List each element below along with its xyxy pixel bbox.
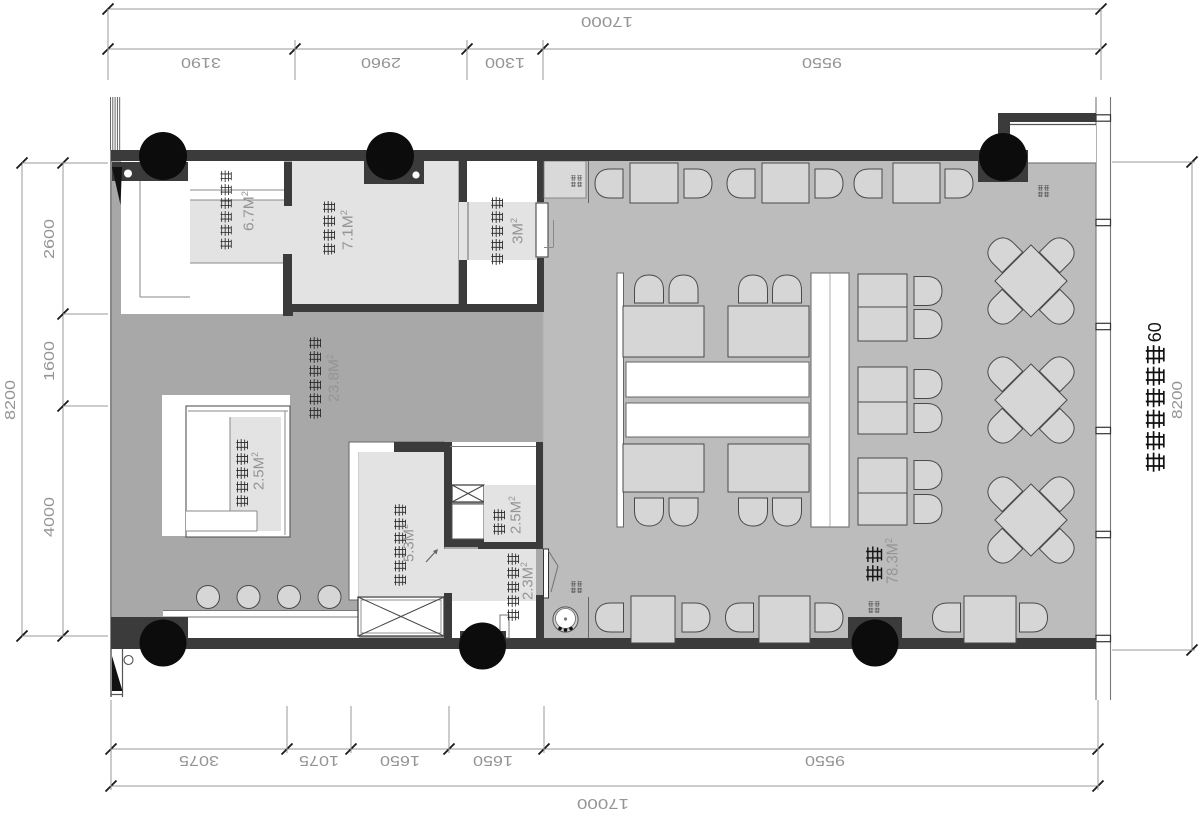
svg-text:78.3M2: 78.3M2 bbox=[884, 538, 902, 584]
svg-text:17000: 17000 bbox=[577, 795, 629, 811]
svg-text:60: 60 bbox=[1145, 322, 1165, 342]
svg-text:3190: 3190 bbox=[181, 54, 221, 70]
svg-text:17000: 17000 bbox=[581, 13, 633, 29]
svg-text:1650: 1650 bbox=[380, 752, 420, 768]
svg-text:2.3M2: 2.3M2 bbox=[519, 562, 537, 600]
svg-text:5.3M2: 5.3M2 bbox=[400, 524, 418, 562]
svg-text:8200: 8200 bbox=[1170, 381, 1186, 419]
svg-text:23.8M2: 23.8M2 bbox=[325, 354, 343, 402]
svg-text:3075: 3075 bbox=[179, 752, 219, 768]
svg-text:2.5M2: 2.5M2 bbox=[250, 452, 268, 490]
svg-text:7.1M2: 7.1M2 bbox=[339, 210, 357, 250]
svg-text:1600: 1600 bbox=[42, 341, 58, 381]
svg-text:9550: 9550 bbox=[805, 752, 845, 768]
svg-text:1650: 1650 bbox=[473, 752, 513, 768]
svg-text:6.7M2: 6.7M2 bbox=[240, 191, 258, 231]
svg-text:4000: 4000 bbox=[42, 497, 58, 537]
svg-text:2.5M2: 2.5M2 bbox=[507, 496, 525, 534]
svg-text:8200: 8200 bbox=[3, 380, 19, 420]
svg-text:2600: 2600 bbox=[42, 219, 58, 259]
svg-text:2960: 2960 bbox=[361, 54, 401, 70]
svg-text:9550: 9550 bbox=[802, 54, 842, 70]
svg-text:1075: 1075 bbox=[299, 752, 339, 768]
svg-text:1300: 1300 bbox=[485, 54, 525, 70]
